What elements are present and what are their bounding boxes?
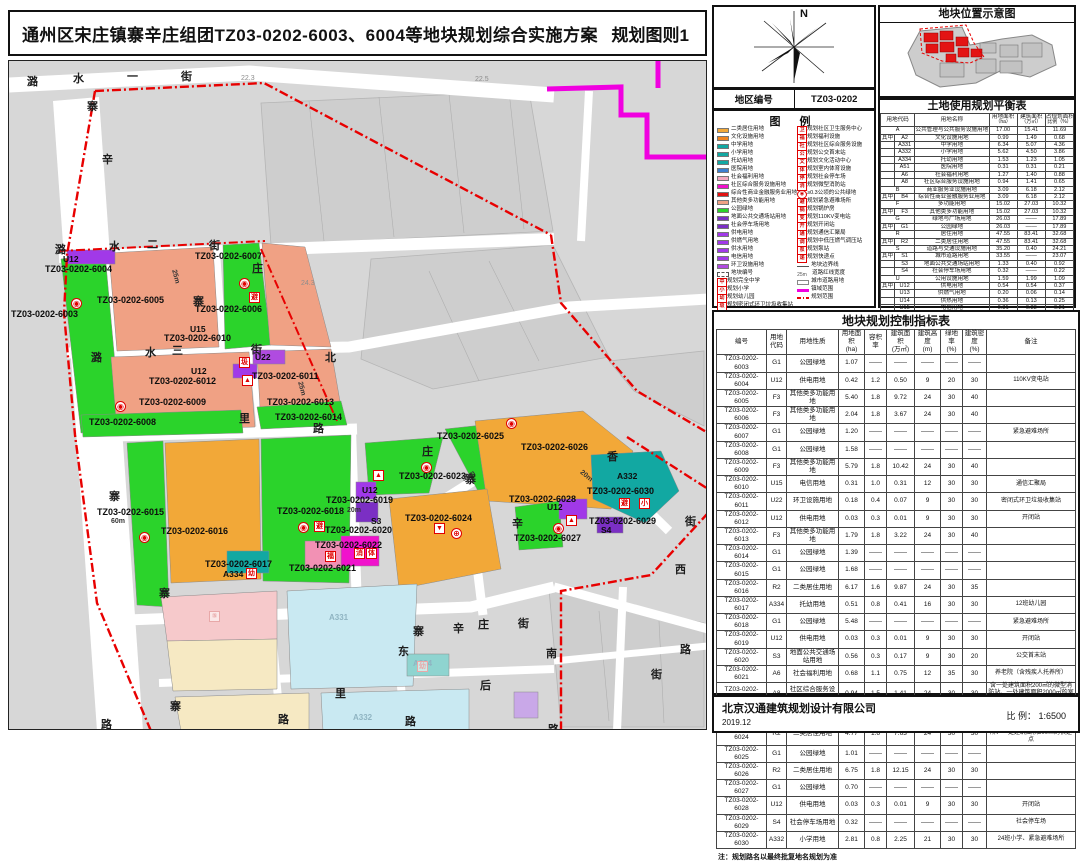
legend-item-label: 规划开闭站 <box>807 223 835 229</box>
cell: 1.58 <box>839 441 865 458</box>
parcel-code-label: TZ03-0202-6012 <box>149 376 216 386</box>
legend-item: 综合性商业金融服务业用地 <box>717 190 797 198</box>
legend-color-swatch <box>717 176 729 181</box>
cell <box>987 389 1076 406</box>
legend-item-label: 规划中低压燃气调压站 <box>807 239 862 245</box>
cell: 二类居住用地 <box>787 579 839 596</box>
legend-panel: 图 例 二类居住用地文化设施用地中学用地小学用地托幼用地医院用地社会福利用地社区… <box>712 109 876 308</box>
cell: 9 <box>915 648 941 665</box>
cell: 0.03 <box>839 510 865 527</box>
cell: TZ03-0202-6008 <box>717 441 767 458</box>
parcel-code-label: TZ03-0202-6005 <box>97 295 164 305</box>
legend-item: 公规划公交首末站 <box>797 150 871 158</box>
parcel-code-label: TZ03-0202-6018 <box>277 506 344 516</box>
balance-row: A331中学用地6.345.074.36 <box>881 142 1074 149</box>
control-row: TZ03-0202-6026R2二类居住用地6.751.812.15243030 <box>717 762 1076 779</box>
cell: 10.42 <box>887 458 915 475</box>
cell: 2.25 <box>887 831 915 848</box>
cell: F3 <box>767 407 787 424</box>
elevation-label: 22.3 <box>241 75 255 82</box>
cell: 供电用地 <box>787 372 839 389</box>
cell: 20 <box>963 648 987 665</box>
balance-row: U14供热用地0.360.130.25 <box>881 297 1074 304</box>
legend-item: 锅规划锅炉房 <box>797 206 871 214</box>
cell: 30 <box>941 579 963 596</box>
parcel-code-label: TZ03-0202-6009 <box>139 397 206 407</box>
cell: 0.8 <box>865 596 887 613</box>
cell: —— <box>963 441 987 458</box>
cell: 公交首末站 <box>987 648 1076 665</box>
street-name-label: 寨 <box>413 623 424 639</box>
map-marker-icon: ▲ <box>566 515 577 526</box>
parcel-code-label: TZ03-0202-6013 <box>267 397 334 407</box>
column-header: 绿地率(%) <box>941 330 963 355</box>
cell: U <box>881 275 915 282</box>
column-header: 容积率 <box>865 330 887 355</box>
balance-row: 其中F3其他类多功能用地15.0227.0310.32 <box>881 208 1074 215</box>
control-row: TZ03-0202-6015G1公园绿地1.68—————————— <box>717 562 1076 579</box>
cell: 30 <box>941 831 963 848</box>
cell: 社会福利用地 <box>787 665 839 682</box>
street-name-label: 里 <box>335 685 346 701</box>
cell: 社会停车场用地 <box>787 814 839 831</box>
legend-left-column: 二类居住用地文化设施用地中学用地小学用地托幼用地医院用地社会福利用地社区综合服务… <box>717 126 797 310</box>
legend-item-label: 规划密闭式环卫垃圾收集站 <box>727 303 793 309</box>
column-header: 用地面积(ha) <box>839 330 865 355</box>
balance-row: A334托幼用地1.531.231.05 <box>881 156 1074 163</box>
cell: F3 <box>767 527 787 544</box>
cell: 1.2 <box>865 372 887 389</box>
cell: —— <box>865 545 887 562</box>
road-width-label: 25m <box>170 269 180 284</box>
cell: 9 <box>915 797 941 814</box>
legend-item-label: 中学用地 <box>731 143 753 149</box>
legend-item-label: 社会福利用地 <box>731 175 764 181</box>
cell: 1.8 <box>865 458 887 475</box>
legend-item-label: 规划幼儿园 <box>727 295 755 301</box>
legend-item-label: 公园绿地 <box>731 207 753 213</box>
legend-item: 消规划微型消防站 <box>797 182 871 190</box>
legend-item: 福规划福利设施 <box>797 134 871 142</box>
cell: —— <box>963 355 987 372</box>
cell: U12 <box>767 510 787 527</box>
control-row: TZ03-0202-6011U22环卫设施用地0.180.40.0793030密… <box>717 493 1076 510</box>
street-name-label: 南 <box>546 645 557 661</box>
balance-row: 其中R2二类居住用地47.5583.4132.68 <box>881 238 1074 245</box>
legend-marker-icon: 递 <box>797 254 807 263</box>
control-row: TZ03-0202-6025G1公园绿地1.01—————————— <box>717 745 1076 762</box>
street-name-label: 香 <box>607 448 618 464</box>
cell: TZ03-0202-6017 <box>717 596 767 613</box>
legend-item: 供水用地 <box>717 246 797 254</box>
balance-row: A332小学用地5.624.503.86 <box>881 149 1074 156</box>
legend-item: 停规划社会停车场 <box>797 174 871 182</box>
street-name-label: 水 <box>73 70 84 86</box>
street-name-label: 二 <box>147 236 158 252</box>
cell: 1.8 <box>865 762 887 779</box>
legend-color-swatch <box>717 152 729 157</box>
cell: 5.40 <box>839 389 865 406</box>
cell: 24 <box>915 389 941 406</box>
parcel-code-label: TZ03-0202-6028 <box>509 494 576 504</box>
street-name-label: 后 <box>480 677 491 693</box>
control-row: TZ03-0202-6008G1公园绿地1.58—————————— <box>717 441 1076 458</box>
street-name-label: 辛 <box>102 151 113 167</box>
legend-item-label: 规划范围 <box>811 295 833 301</box>
control-row: TZ03-0202-6006F3其他类多功能用地2.041.83.6724304… <box>717 407 1076 424</box>
cell: 40 <box>963 527 987 544</box>
cell: 30 <box>941 510 963 527</box>
control-row: TZ03-0202-6020S3地面公共交通场站用地0.560.30.17930… <box>717 648 1076 665</box>
cell: 0.01 <box>887 510 915 527</box>
cell: —— <box>941 814 963 831</box>
balance-row: B商业服务业设施用地3.096.182.12 <box>881 186 1074 193</box>
street-name-label: 路 <box>101 716 112 730</box>
cell: 0.4 <box>865 493 887 510</box>
legend-item: 托幼用地 <box>717 158 797 166</box>
cell: 0.41 <box>887 596 915 613</box>
cell: 30 <box>941 476 963 493</box>
cell: —— <box>941 441 963 458</box>
legend-item-label: 规划锅炉房 <box>807 207 835 213</box>
control-row: TZ03-0202-6014G1公园绿地1.39—————————— <box>717 545 1076 562</box>
cell: 9.72 <box>887 389 915 406</box>
legend-color-swatch <box>717 144 729 149</box>
cell: 24 <box>915 579 941 596</box>
cell: 开闭站 <box>987 797 1076 814</box>
parcel-code-label: TZ03-0202-6015 <box>97 507 164 517</box>
legend-item-label: 规划通信汇聚局 <box>807 231 846 237</box>
balance-row: G绿地与广场用地26.03——17.89 <box>881 216 1074 223</box>
cell: 其他类多功能用地 <box>787 527 839 544</box>
cell: 30 <box>941 596 963 613</box>
north-label: N <box>800 8 808 20</box>
control-row: TZ03-0202-6021A6社会福利用地0.681.10.75123530养… <box>717 665 1076 682</box>
cell: 1.39 <box>839 545 865 562</box>
legend-item-label: 供水用地 <box>731 247 753 253</box>
cell: —— <box>887 745 915 762</box>
cell: 12 <box>915 665 941 682</box>
control-table-note: 注：规划路名以最终批复地名规划为准 <box>716 849 1076 865</box>
street-name-label: 街 <box>251 341 262 357</box>
cell: G1 <box>767 780 787 797</box>
cell: 30 <box>963 831 987 848</box>
cell: —— <box>865 780 887 797</box>
parcel-code-label: TZ03-0202-6025 <box>437 431 504 441</box>
cell: 1.8 <box>865 527 887 544</box>
cell: S3 <box>767 648 787 665</box>
cell: —— <box>887 545 915 562</box>
street-name-label: 寨 <box>170 698 181 714</box>
map-marker-icon: ◉ <box>71 298 82 309</box>
cell: —— <box>915 424 941 441</box>
street-name-label: 庄 <box>252 260 263 276</box>
legend-bound-swatch <box>797 297 809 299</box>
cell: B <box>881 186 915 193</box>
legend-item: 体规划室内体育设施 <box>797 166 871 174</box>
cell <box>987 355 1076 372</box>
map-marker-icon: 避 <box>314 521 325 532</box>
parcel-code-label: S4 <box>601 525 611 535</box>
legend-item-label: 医院用地 <box>731 167 753 173</box>
street-name-label: 路 <box>313 420 324 436</box>
legend-color-swatch <box>717 208 729 213</box>
cell: TZ03-0202-6026 <box>717 762 767 779</box>
cell: 其他类多功能用地 <box>787 389 839 406</box>
parcel-code-label: TZ03-0202-6008 <box>89 417 156 427</box>
street-name-label: 东 <box>398 643 409 659</box>
street-name-label: 潞 <box>27 73 38 89</box>
cell: TZ03-0202-6013 <box>717 527 767 544</box>
road-width-label: 25m <box>296 381 306 396</box>
legend-item: 递规划快递点 <box>797 254 871 262</box>
cell: —— <box>963 424 987 441</box>
cell: 40 <box>963 407 987 424</box>
cell: 0.01 <box>887 631 915 648</box>
legend-item: 文化设施用地 <box>717 134 797 142</box>
cell: U12 <box>767 797 787 814</box>
cell: 9 <box>915 510 941 527</box>
legend-color-swatch <box>717 128 729 133</box>
control-row: TZ03-0202-6010U15电信用地0.311.00.31123030通信… <box>717 476 1076 493</box>
legend-item: 地块边界线 <box>797 262 871 270</box>
cell: 1.8 <box>865 407 887 424</box>
legend-item-label: 规划快递点 <box>807 255 835 261</box>
cell: —— <box>963 745 987 762</box>
street-name-label: 辛 <box>512 515 523 531</box>
cell: 养老院（含残疾人托养所） <box>987 665 1076 682</box>
legend-item-label: 小学用地 <box>731 151 753 157</box>
legend-item-label: 电信用地 <box>731 255 753 261</box>
cell: 0.32 <box>839 814 865 831</box>
cell: 30 <box>963 596 987 613</box>
cell: R2 <box>767 762 787 779</box>
cell: —— <box>941 562 963 579</box>
balance-row: A6社会福利用地1.271.400.88 <box>881 171 1074 178</box>
cell: 供电用地 <box>787 631 839 648</box>
control-row: TZ03-0202-6007G1公园绿地1.20——————————紧急避难场所 <box>717 424 1076 441</box>
legend-item-label: 地面公共交通场站用地 <box>731 215 786 221</box>
cell: —— <box>915 562 941 579</box>
balance-row: S3地面公共交通场站用地1.330.400.92 <box>881 260 1074 267</box>
map-marker-icon: 小 <box>639 498 650 509</box>
column-header: 建筑面积（万㎡） <box>1017 114 1045 127</box>
legend-color-swatch <box>717 160 729 165</box>
column-header: 备注 <box>987 330 1076 355</box>
cell: 0.51 <box>839 596 865 613</box>
cell: 6.75 <box>839 762 865 779</box>
cell: —— <box>941 424 963 441</box>
location-title: 地块位置示意图 <box>880 7 1074 23</box>
legend-item: 小学用地 <box>717 150 797 158</box>
legend-item-label: 环卫设施用地 <box>731 263 764 269</box>
cell: 30 <box>963 762 987 779</box>
cell: 110KV变电站 <box>987 372 1076 389</box>
cell: 30 <box>963 665 987 682</box>
road-width-label: 60m <box>111 518 125 525</box>
cell: TZ03-0202-6020 <box>717 648 767 665</box>
cell: 21 <box>915 831 941 848</box>
cell <box>987 780 1076 797</box>
legend-item: 医院用地 <box>717 166 797 174</box>
cell: 公园绿地 <box>787 424 839 441</box>
cell: 0.8 <box>865 831 887 848</box>
existing-parcel-label: A332 <box>353 713 372 722</box>
cell: TZ03-0202-6018 <box>717 614 767 631</box>
legend-item-label: 规划泵站 <box>807 247 829 253</box>
street-name-label: 辛 <box>453 620 464 636</box>
cell: 5.48 <box>839 614 865 631</box>
cell: 公园绿地 <box>787 545 839 562</box>
parcel-code-label: TZ03-0202-6003 <box>11 309 78 319</box>
cell: TZ03-0202-6014 <box>717 545 767 562</box>
cell: 0.3 <box>865 648 887 665</box>
street-name-label: 庄 <box>478 616 489 632</box>
cell: TZ03-0202-6027 <box>717 780 767 797</box>
street-name-label: 潞 <box>55 241 66 257</box>
cell: —— <box>865 614 887 631</box>
balance-row: 其中A2文化设施用地0.991.490.68 <box>881 134 1074 141</box>
table-header-row: 编号用地代码用地性质用地面积(ha)容积率建筑面积(万㎡)建筑高度(m)绿地率(… <box>717 330 1076 355</box>
cell: 开闭站 <box>987 631 1076 648</box>
cell: 30 <box>941 631 963 648</box>
cell: 社会停车场 <box>987 814 1076 831</box>
legend-item: 二类居住用地 <box>717 126 797 134</box>
column-header: 建筑密度(%) <box>963 330 987 355</box>
legend-item-label: 托幼用地 <box>731 159 753 165</box>
legend-item: ◉≥0.3公顷的公共绿地 <box>797 190 871 198</box>
map-marker-icon: ⊕ <box>451 528 462 539</box>
cell: 35 <box>941 665 963 682</box>
cell: 1.1 <box>865 665 887 682</box>
legend-town-swatch <box>797 289 809 292</box>
legend-item: 通规划通信汇聚局 <box>797 230 871 238</box>
cell: F3 <box>767 389 787 406</box>
map-marker-icon: ⑤ <box>209 611 220 622</box>
legend-item-label: 社会停车场用地 <box>731 223 770 229</box>
street-name-label: 一 <box>127 68 138 84</box>
balance-row: A公共管理与公共服务设施用地17.0015.4111.69 <box>881 127 1074 134</box>
cell: 24 <box>915 762 941 779</box>
legend-item: 城市道路用地 <box>797 278 871 286</box>
cell: —— <box>915 441 941 458</box>
balance-row: A8社区综合服务设施用地0.941.410.65 <box>881 179 1074 186</box>
cell: 供电用地 <box>787 797 839 814</box>
map-marker-icon: 幼 <box>246 568 257 579</box>
column-header: 用地性质 <box>787 330 839 355</box>
legend-color-swatch <box>717 168 729 173</box>
legend-item-label: 文化设施用地 <box>731 135 764 141</box>
legend-item-label: 规划110KV变电站 <box>807 215 851 221</box>
parcel-code-label: U12 <box>191 366 207 376</box>
legend-item-label: 供电用地 <box>731 231 753 237</box>
legend-item: 泵规划泵站 <box>797 246 871 254</box>
cell <box>987 562 1076 579</box>
legend-item-label: 供燃气用地 <box>731 239 759 245</box>
balance-row: S道路与交通设施用地35.200.4024.21 <box>881 245 1074 252</box>
cell: 0.17 <box>887 648 915 665</box>
cell: —— <box>915 614 941 631</box>
control-row: TZ03-0202-6027G1公园绿地0.70—————————— <box>717 780 1076 797</box>
cell: 12.15 <box>887 762 915 779</box>
cell: A332 <box>767 831 787 848</box>
cell: —— <box>865 355 887 372</box>
map-marker-icon: ▲ <box>373 470 384 481</box>
cell: 9 <box>915 372 941 389</box>
map-marker-icon: 圾 <box>239 357 250 368</box>
scale-value: 1:6500 <box>1038 711 1066 721</box>
street-name-label: 庄 <box>422 443 433 459</box>
balance-row: 其中B4综合性商业金融服务业用地3.096.182.12 <box>881 193 1074 200</box>
cell: 0.03 <box>839 797 865 814</box>
balance-row: S4社会停车场用地0.32——0.22 <box>881 268 1074 275</box>
cell: 30 <box>941 389 963 406</box>
cell: 30 <box>941 797 963 814</box>
cell: 12 <box>915 476 941 493</box>
land-use-balance-table: 用地代码用地名称用地面积（ha）建筑面积（万㎡）占规划面积比例（%）A公共管理与… <box>880 113 1074 328</box>
cell: 托幼用地 <box>787 596 839 613</box>
column-header: 用地代码 <box>767 330 787 355</box>
legend-item-label: 道路红线宽度 <box>812 271 845 277</box>
cell: U12 <box>767 372 787 389</box>
cell: 3.67 <box>887 407 915 424</box>
column-header: 建筑高度(m) <box>915 330 941 355</box>
street-name-label: 街 <box>181 68 192 84</box>
cell <box>987 407 1076 424</box>
legend-color-swatch <box>717 200 729 205</box>
legend-color-swatch <box>717 248 729 253</box>
legend-color-swatch <box>717 240 729 245</box>
parcel-code-label: TZ03-0202-6006 <box>195 304 262 314</box>
cell: —— <box>865 745 887 762</box>
legend-item-label: 规划社区综合服务设施 <box>807 143 862 149</box>
cell: —— <box>865 424 887 441</box>
street-name-label: 街 <box>518 615 529 631</box>
legend-item-label: 规划微型消防站 <box>807 183 846 189</box>
control-table-title: 地块规划控制指标表 <box>716 313 1076 329</box>
scale-label: 比 例： <box>1006 711 1036 721</box>
cell: —— <box>887 562 915 579</box>
street-name-label: 街 <box>651 666 662 682</box>
street-name-label: 潞 <box>91 349 102 365</box>
cell: U12 <box>767 631 787 648</box>
cell: —— <box>887 814 915 831</box>
legend-dash-swatch <box>717 272 729 277</box>
parcel-code-label: TZ03-0202-6020 <box>325 525 392 535</box>
cell: G1 <box>767 441 787 458</box>
cell: 16 <box>915 596 941 613</box>
cell: 0.31 <box>839 476 865 493</box>
cell <box>987 458 1076 475</box>
cell: —— <box>941 614 963 631</box>
legend-color-swatch <box>717 264 729 269</box>
cell: G1 <box>767 745 787 762</box>
cell: G1 <box>767 562 787 579</box>
cell: TZ03-0202-6009 <box>717 458 767 475</box>
cell <box>987 579 1076 596</box>
cell: 0.3 <box>865 797 887 814</box>
cell: 9.87 <box>887 579 915 596</box>
legend-color-swatch <box>717 224 729 229</box>
legend-item-label: 地块边界线 <box>811 263 839 269</box>
cell: A6 <box>767 665 787 682</box>
cell: TZ03-0202-6028 <box>717 797 767 814</box>
plot-control-panel: 地块规划控制指标表 编号用地代码用地性质用地面积(ha)容积率建筑面积(万㎡)建… <box>712 310 1080 695</box>
legend-item: 社会福利用地 <box>717 174 797 182</box>
cell: TZ03-0202-6029 <box>717 814 767 831</box>
cell: 6.17 <box>839 579 865 596</box>
cell: 40 <box>963 458 987 475</box>
